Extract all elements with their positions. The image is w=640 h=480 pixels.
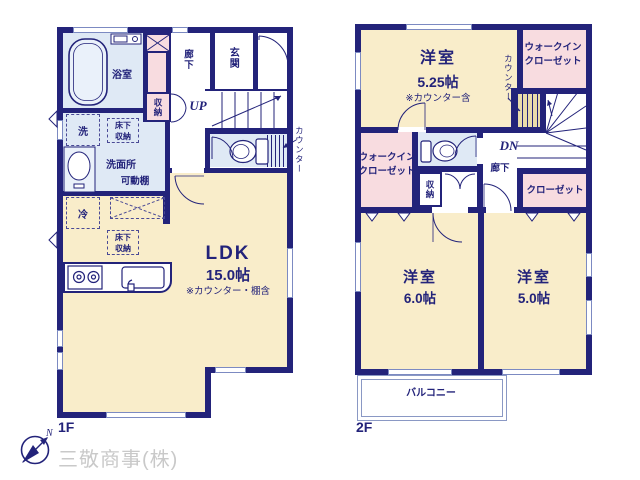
washroom-sink bbox=[64, 147, 95, 192]
toilet-2f bbox=[421, 141, 457, 162]
closet-chevrons bbox=[366, 213, 580, 221]
stairs-1f bbox=[212, 92, 281, 128]
shelf-cross-marks bbox=[111, 198, 164, 218]
toilet-1f bbox=[230, 139, 268, 164]
stove bbox=[68, 266, 102, 289]
compass-north-label: N bbox=[45, 428, 54, 439]
door-arcs-1f bbox=[171, 36, 288, 204]
linework-layer: N bbox=[0, 0, 640, 480]
counter-arrow-1f bbox=[283, 140, 296, 148]
cross-storage-marks bbox=[146, 35, 169, 51]
kitchen-sink bbox=[122, 267, 164, 291]
compass-icon: N bbox=[22, 428, 55, 464]
door-arcs-2f bbox=[398, 103, 511, 242]
vent-marks bbox=[49, 111, 57, 248]
bathtub bbox=[69, 39, 107, 105]
bath-vanity bbox=[111, 34, 141, 44]
counter-arrow-2f bbox=[508, 98, 520, 111]
stairs-2f bbox=[517, 92, 586, 158]
floor-plan-canvas: 収納 洗 床下 収納 冷 床下 収納 浴室 廊下 玄関 UP 洗面所 可動棚 カ… bbox=[0, 0, 640, 480]
